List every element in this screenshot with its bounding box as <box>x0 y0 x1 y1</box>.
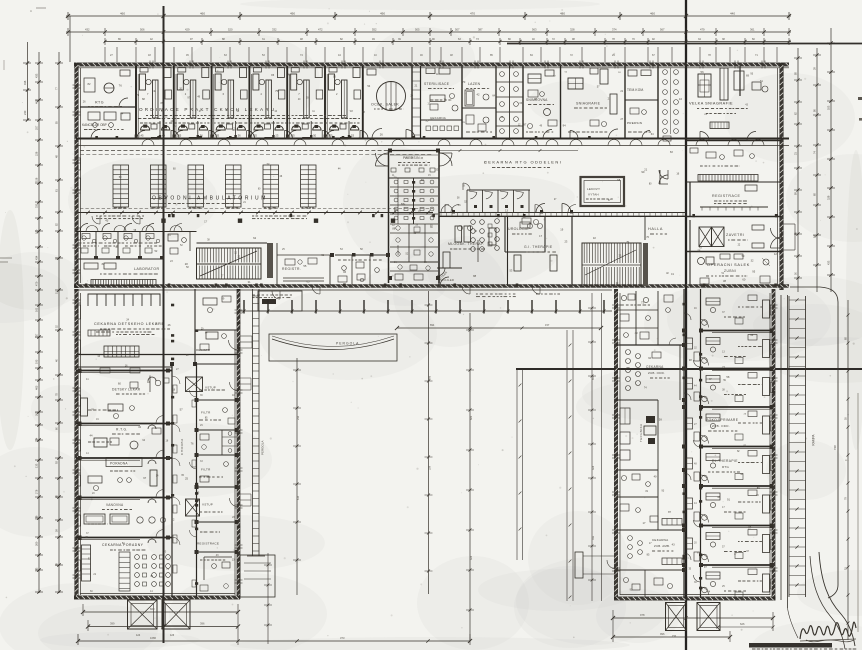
svg-text:53: 53 <box>351 134 354 138</box>
svg-text:19: 19 <box>560 227 563 231</box>
svg-text:55: 55 <box>303 264 307 268</box>
svg-text:23: 23 <box>170 260 173 263</box>
svg-text:29: 29 <box>612 54 615 57</box>
svg-text:RTG: RTG <box>722 465 730 469</box>
svg-text:21: 21 <box>644 167 647 171</box>
svg-text:49: 49 <box>162 134 165 138</box>
svg-text:81: 81 <box>645 491 648 493</box>
svg-text:506: 506 <box>140 28 145 32</box>
svg-text:85: 85 <box>490 54 493 57</box>
svg-text:33: 33 <box>435 168 438 172</box>
svg-text:80: 80 <box>508 38 511 41</box>
svg-text:72: 72 <box>552 38 555 41</box>
svg-text:23: 23 <box>744 413 747 415</box>
svg-text:520: 520 <box>228 28 233 32</box>
svg-text:OPERACNI SALEK: OPERACNI SALEK <box>707 263 750 267</box>
svg-text:ZAVETRI: ZAVETRI <box>726 233 744 237</box>
svg-text:2: 2 <box>336 92 338 96</box>
svg-text:460: 460 <box>650 12 655 16</box>
svg-text:27: 27 <box>110 54 113 57</box>
svg-text:10: 10 <box>679 97 683 101</box>
svg-text:52: 52 <box>154 249 157 253</box>
svg-text:34: 34 <box>707 590 710 593</box>
svg-text:17: 17 <box>642 521 645 525</box>
svg-text:66: 66 <box>458 203 461 207</box>
svg-text:260: 260 <box>35 541 39 546</box>
svg-text:49: 49 <box>539 125 542 127</box>
svg-text:293: 293 <box>35 567 39 572</box>
svg-text:PREDSIN: PREDSIN <box>627 121 642 125</box>
svg-text:125: 125 <box>252 134 257 138</box>
svg-text:24: 24 <box>704 114 707 116</box>
svg-text:465: 465 <box>35 385 39 390</box>
svg-text:12: 12 <box>774 252 778 256</box>
svg-text:70: 70 <box>462 80 466 84</box>
svg-text:626: 626 <box>740 622 745 626</box>
svg-text:157: 157 <box>545 323 550 327</box>
svg-text:PERGOLA: PERGOLA <box>336 342 359 346</box>
svg-text:73: 73 <box>641 301 645 305</box>
svg-text:RAMPA: RAMPA <box>812 434 816 446</box>
svg-text:480: 480 <box>560 12 565 16</box>
svg-text:432: 432 <box>85 28 90 32</box>
svg-text:18: 18 <box>172 390 175 392</box>
svg-text:160: 160 <box>35 229 39 234</box>
svg-text:123: 123 <box>170 634 175 637</box>
svg-text:17: 17 <box>649 543 652 545</box>
svg-text:76: 76 <box>191 442 194 446</box>
svg-text:35: 35 <box>688 568 691 571</box>
svg-text:138: 138 <box>35 515 39 520</box>
svg-text:490: 490 <box>380 12 385 16</box>
svg-text:68: 68 <box>142 97 145 101</box>
svg-text:60: 60 <box>752 38 755 41</box>
svg-text:R.T.G.: R.T.G. <box>116 428 128 432</box>
svg-text:HALLA: HALLA <box>648 227 663 231</box>
svg-text:FILTR: FILTR <box>201 411 211 415</box>
svg-text:13: 13 <box>505 208 509 212</box>
svg-text:505: 505 <box>415 28 420 32</box>
svg-text:RTG: RTG <box>95 101 104 105</box>
svg-text:89: 89 <box>56 563 59 566</box>
svg-text:CEKARNA: CEKARNA <box>646 365 664 369</box>
svg-text:689: 689 <box>470 415 473 420</box>
svg-text:23: 23 <box>564 239 567 243</box>
svg-text:70: 70 <box>646 236 649 239</box>
svg-text:26: 26 <box>380 133 384 137</box>
svg-text:ZUB. ODD.: ZUB. ODD. <box>712 424 730 428</box>
svg-text:17: 17 <box>722 506 725 509</box>
svg-text:29: 29 <box>410 96 413 98</box>
svg-text:42: 42 <box>150 38 153 41</box>
svg-text:MLOOBK. THERAP.: MLOOBK. THERAP. <box>448 242 485 246</box>
svg-text:PERGOLA: PERGOLA <box>261 440 265 455</box>
svg-text:507: 507 <box>455 28 460 32</box>
svg-text:67: 67 <box>652 54 655 57</box>
svg-text:85: 85 <box>647 553 650 556</box>
svg-text:CEKARNA: CEKARNA <box>652 538 669 542</box>
svg-text:42: 42 <box>477 93 480 97</box>
svg-text:88: 88 <box>795 72 798 75</box>
svg-text:436: 436 <box>23 80 27 85</box>
svg-text:52: 52 <box>565 72 568 74</box>
svg-text:87: 87 <box>668 510 671 514</box>
svg-text:91: 91 <box>727 498 730 502</box>
svg-text:64: 64 <box>492 95 495 98</box>
svg-text:43: 43 <box>105 218 109 222</box>
svg-text:82: 82 <box>56 223 59 226</box>
svg-text:479: 479 <box>700 28 705 32</box>
svg-text:11: 11 <box>165 116 168 118</box>
svg-text:18: 18 <box>148 54 151 57</box>
svg-text:58: 58 <box>186 266 189 269</box>
svg-text:78: 78 <box>612 38 615 41</box>
svg-text:44: 44 <box>89 434 93 438</box>
svg-text:95: 95 <box>752 270 755 274</box>
svg-text:94: 94 <box>120 112 123 116</box>
svg-text:161: 161 <box>35 307 39 312</box>
svg-text:31: 31 <box>248 280 251 284</box>
svg-text:95: 95 <box>333 74 337 78</box>
svg-text:243: 243 <box>297 415 300 420</box>
svg-text:23: 23 <box>275 134 278 138</box>
svg-text:82: 82 <box>553 75 556 77</box>
svg-text:CEKARNA: CEKARNA <box>430 116 446 120</box>
svg-text:328: 328 <box>827 195 831 200</box>
svg-text:KANCELAR OBP: KANCELAR OBP <box>82 123 107 127</box>
svg-text:165: 165 <box>290 134 295 138</box>
svg-text:135: 135 <box>177 134 182 138</box>
svg-text:21: 21 <box>620 90 623 93</box>
svg-text:97: 97 <box>746 551 749 553</box>
svg-text:94: 94 <box>563 123 567 127</box>
svg-text:332: 332 <box>35 203 39 208</box>
svg-text:361: 361 <box>750 28 755 32</box>
svg-text:74: 74 <box>756 494 759 497</box>
svg-text:66: 66 <box>750 333 753 337</box>
svg-text:VSTUP: VSTUP <box>205 386 216 390</box>
svg-text:433: 433 <box>35 73 39 78</box>
svg-text:38: 38 <box>722 38 725 41</box>
svg-text:62: 62 <box>253 236 257 240</box>
svg-text:16: 16 <box>676 172 679 176</box>
svg-text:276: 276 <box>35 489 39 494</box>
svg-text:82: 82 <box>737 451 740 453</box>
svg-text:VSTUP: VSTUP <box>202 503 213 507</box>
svg-text:REGISTR.: REGISTR. <box>282 267 301 271</box>
svg-text:27: 27 <box>620 117 623 121</box>
svg-text:84: 84 <box>530 54 533 57</box>
svg-text:567: 567 <box>660 28 665 32</box>
svg-text:18: 18 <box>618 72 621 74</box>
svg-text:VANOVNA: VANOVNA <box>106 503 124 507</box>
svg-text:195: 195 <box>35 359 39 364</box>
svg-text:396: 396 <box>429 375 432 380</box>
svg-text:7: 7 <box>147 92 149 96</box>
svg-text:25: 25 <box>722 585 725 588</box>
svg-text:150: 150 <box>672 635 677 638</box>
svg-text:460: 460 <box>120 12 125 16</box>
svg-text:VYTAH: VYTAH <box>588 193 599 197</box>
svg-text:PORADNA: PORADNA <box>110 462 128 466</box>
svg-text:55: 55 <box>845 417 848 420</box>
svg-text:86: 86 <box>118 38 121 41</box>
svg-text:EL.THERAPIE: EL.THERAPIE <box>712 459 738 463</box>
svg-text:44: 44 <box>694 502 697 505</box>
svg-text:31: 31 <box>150 574 154 578</box>
svg-text:257: 257 <box>35 125 39 130</box>
svg-text:STERILISACE: STERILISACE <box>424 82 450 86</box>
svg-text:70: 70 <box>632 38 635 41</box>
svg-text:25: 25 <box>185 477 189 481</box>
svg-text:ZUB. AMB.: ZUB. AMB. <box>654 544 670 548</box>
svg-text:332: 332 <box>272 28 277 32</box>
svg-text:387: 387 <box>478 28 483 32</box>
svg-text:86: 86 <box>757 486 760 490</box>
svg-text:44: 44 <box>338 169 341 171</box>
svg-text:553: 553 <box>827 105 831 110</box>
svg-text:71: 71 <box>755 54 758 57</box>
svg-text:OBVODNI AMBULATORIUM: OBVODNI AMBULATORIUM <box>152 196 268 202</box>
svg-text:64: 64 <box>205 332 208 334</box>
svg-text:615: 615 <box>297 495 300 500</box>
svg-text:440: 440 <box>730 12 735 16</box>
svg-text:74: 74 <box>136 93 139 97</box>
svg-text:22: 22 <box>738 243 741 246</box>
svg-text:78: 78 <box>708 54 711 57</box>
svg-text:20: 20 <box>92 492 95 495</box>
svg-text:SNIAGRAFIE: SNIAGRAFIE <box>576 102 601 106</box>
svg-text:894: 894 <box>430 323 435 327</box>
svg-text:93: 93 <box>750 72 753 75</box>
svg-text:433: 433 <box>827 260 831 265</box>
svg-text:226: 226 <box>35 151 39 156</box>
svg-text:29: 29 <box>462 122 465 124</box>
svg-text:92: 92 <box>652 38 655 41</box>
svg-text:124: 124 <box>136 634 141 637</box>
svg-text:ORDINACE PRAKTICKYCH LEKARU: ORDINACE PRAKTICKYCH LEKARU <box>139 107 276 112</box>
svg-text:342: 342 <box>592 535 595 540</box>
svg-text:G.I. THERAPIE: G.I. THERAPIE <box>524 245 553 249</box>
svg-text:25: 25 <box>282 248 285 251</box>
svg-text:79: 79 <box>626 240 629 244</box>
svg-text:60: 60 <box>118 381 122 385</box>
svg-text:34: 34 <box>698 38 701 41</box>
svg-text:UROLOGIE: UROLOGIE <box>508 227 529 231</box>
svg-text:328: 328 <box>570 28 575 32</box>
svg-text:52: 52 <box>164 127 167 131</box>
svg-text:472: 472 <box>318 28 323 32</box>
svg-text:REGISTRACE: REGISTRACE <box>197 542 219 546</box>
svg-text:CHODBA: CHODBA <box>180 438 184 455</box>
svg-text:CEKARNA RTG ODDELENI: CEKARNA RTG ODDELENI <box>484 160 562 165</box>
svg-text:48: 48 <box>694 463 697 466</box>
svg-text:50: 50 <box>795 272 798 275</box>
svg-text:57: 57 <box>180 408 184 412</box>
svg-text:32: 32 <box>666 273 669 275</box>
svg-text:76: 76 <box>119 83 123 87</box>
svg-text:80: 80 <box>649 183 652 185</box>
svg-text:48: 48 <box>56 155 59 158</box>
svg-text:69: 69 <box>746 73 750 77</box>
svg-text:VELKA SNIAGRAFIE: VELKA SNIAGRAFIE <box>689 102 733 106</box>
svg-text:83: 83 <box>343 270 346 274</box>
svg-text:85: 85 <box>205 418 208 420</box>
svg-text:11: 11 <box>312 110 315 113</box>
svg-text:470: 470 <box>470 12 475 16</box>
svg-text:ZUBNI: ZUBNI <box>724 269 736 273</box>
svg-text:337: 337 <box>35 333 39 338</box>
svg-text:33: 33 <box>618 253 621 257</box>
svg-text:78: 78 <box>362 110 365 114</box>
svg-text:90: 90 <box>641 170 645 174</box>
svg-text:470: 470 <box>35 281 39 286</box>
svg-text:18: 18 <box>350 110 353 113</box>
svg-text:ZUB. ODD.: ZUB. ODD. <box>648 371 665 375</box>
svg-text:75: 75 <box>275 89 279 93</box>
svg-text:24: 24 <box>126 318 129 321</box>
svg-text:1686: 1686 <box>150 636 156 640</box>
svg-text:36: 36 <box>200 394 203 397</box>
svg-text:LAZEN: LAZEN <box>468 82 481 86</box>
svg-text:156: 156 <box>35 177 39 182</box>
svg-text:32: 32 <box>593 236 596 240</box>
svg-text:77: 77 <box>56 87 59 90</box>
svg-text:17: 17 <box>734 552 737 555</box>
svg-text:434: 434 <box>35 255 39 260</box>
svg-text:62: 62 <box>648 356 651 360</box>
svg-text:32: 32 <box>751 259 754 263</box>
svg-text:49: 49 <box>372 38 375 41</box>
svg-text:396: 396 <box>200 622 205 626</box>
svg-text:56: 56 <box>701 70 705 74</box>
svg-text:145: 145 <box>139 134 144 138</box>
svg-text:36: 36 <box>238 134 241 138</box>
svg-text:37: 37 <box>86 532 89 535</box>
svg-text:98: 98 <box>572 38 575 41</box>
svg-text:429: 429 <box>185 28 190 32</box>
svg-text:82: 82 <box>174 125 177 128</box>
svg-text:240: 240 <box>23 110 27 115</box>
svg-text:38: 38 <box>207 239 210 241</box>
svg-text:46: 46 <box>500 115 503 119</box>
svg-text:21: 21 <box>608 96 611 100</box>
svg-text:53: 53 <box>340 248 343 251</box>
svg-text:82: 82 <box>88 82 91 86</box>
svg-text:61: 61 <box>56 189 59 192</box>
svg-text:51: 51 <box>721 273 724 275</box>
svg-text:54: 54 <box>367 84 370 88</box>
svg-text:26: 26 <box>280 176 283 178</box>
svg-text:39: 39 <box>814 67 817 70</box>
svg-text:97: 97 <box>523 122 526 126</box>
svg-text:133: 133 <box>35 463 39 468</box>
svg-text:52: 52 <box>56 325 59 328</box>
svg-text:21: 21 <box>93 573 96 576</box>
svg-text:82: 82 <box>340 38 343 41</box>
svg-text:79: 79 <box>166 569 169 571</box>
svg-text:11: 11 <box>444 97 447 101</box>
svg-text:48: 48 <box>300 38 303 41</box>
svg-text:OCEK. SALEK: OCEK. SALEK <box>371 103 399 107</box>
svg-text:77: 77 <box>221 276 224 278</box>
svg-text:428: 428 <box>592 465 595 470</box>
svg-text:43: 43 <box>672 543 675 547</box>
svg-text:19: 19 <box>96 418 99 421</box>
svg-text:37: 37 <box>748 525 752 529</box>
svg-text:72: 72 <box>266 162 270 166</box>
svg-text:97: 97 <box>704 565 708 569</box>
svg-text:43: 43 <box>138 426 141 429</box>
svg-text:65: 65 <box>307 279 310 283</box>
svg-text:4: 4 <box>30 9 32 13</box>
svg-text:14: 14 <box>86 452 89 455</box>
svg-text:91: 91 <box>744 444 748 448</box>
svg-text:46: 46 <box>168 323 172 327</box>
svg-text:20: 20 <box>694 542 697 545</box>
svg-text:50: 50 <box>313 134 316 138</box>
svg-text:73: 73 <box>476 38 479 41</box>
svg-text:43: 43 <box>635 331 638 335</box>
svg-text:72: 72 <box>570 54 573 57</box>
svg-text:40: 40 <box>56 359 59 362</box>
svg-text:373: 373 <box>340 636 345 640</box>
svg-text:28: 28 <box>185 262 188 266</box>
svg-text:63: 63 <box>116 245 120 249</box>
svg-text:552: 552 <box>372 28 377 32</box>
svg-text:460: 460 <box>35 99 39 104</box>
svg-text:57: 57 <box>597 85 600 89</box>
svg-text:10: 10 <box>234 252 237 255</box>
svg-text:60: 60 <box>258 189 261 191</box>
svg-text:490: 490 <box>290 12 295 16</box>
svg-text:82: 82 <box>401 202 405 206</box>
svg-text:691: 691 <box>592 375 595 380</box>
svg-text:748: 748 <box>833 445 837 450</box>
svg-text:426: 426 <box>470 555 473 560</box>
svg-text:124: 124 <box>35 437 39 442</box>
svg-text:26: 26 <box>83 100 86 104</box>
svg-text:978: 978 <box>640 613 645 617</box>
svg-text:263: 263 <box>35 411 39 416</box>
svg-text:POKOJ PRIMARE: POKOJ PRIMARE <box>706 418 739 422</box>
svg-text:399: 399 <box>110 622 115 626</box>
svg-text:14: 14 <box>150 590 153 593</box>
svg-text:52: 52 <box>180 244 183 247</box>
svg-text:41: 41 <box>86 378 89 381</box>
svg-text:FILTR: FILTR <box>201 468 211 472</box>
svg-text:339: 339 <box>429 465 432 470</box>
svg-text:LEKARI: LEKARI <box>396 245 400 255</box>
svg-text:460: 460 <box>200 12 205 16</box>
svg-text:59: 59 <box>742 255 745 258</box>
svg-text:LABORATOR: LABORATOR <box>134 267 159 271</box>
svg-text:79: 79 <box>845 497 848 500</box>
svg-text:97: 97 <box>190 38 193 41</box>
svg-text:87: 87 <box>608 200 611 202</box>
svg-text:996: 996 <box>660 632 665 636</box>
svg-text:64: 64 <box>651 132 654 136</box>
svg-text:93: 93 <box>662 490 665 493</box>
svg-text:REGISTRACE: REGISTRACE <box>712 194 740 198</box>
svg-text:563: 563 <box>532 28 537 32</box>
svg-text:30: 30 <box>694 581 697 584</box>
svg-text:89: 89 <box>221 297 224 301</box>
svg-text:44: 44 <box>338 54 341 57</box>
svg-text:19: 19 <box>671 273 674 276</box>
svg-text:LEKOVY: LEKOVY <box>587 187 600 191</box>
svg-text:135: 135 <box>215 134 220 138</box>
